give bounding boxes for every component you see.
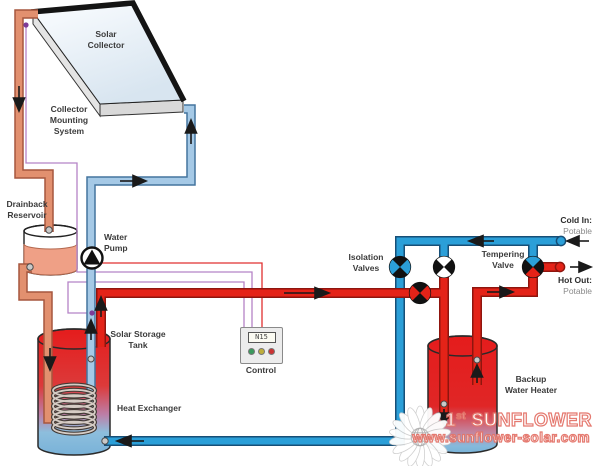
label-heat-exchanger: Heat Exchanger	[117, 403, 181, 414]
cold-in-title: Cold In:	[560, 215, 592, 226]
reservoir-outlet-fitting	[27, 264, 33, 270]
tank-return-fitting	[88, 356, 94, 362]
watermark-brand-word: SUNFLOWER	[472, 410, 593, 430]
isolation-valve-1-icon	[390, 257, 411, 278]
control-leds	[245, 348, 278, 355]
reservoir-inlet-fitting	[46, 227, 52, 233]
label-cold-in: Cold In: Potable	[560, 215, 592, 236]
supply-valve-icon	[410, 283, 431, 304]
watermark-brand-number: 1	[446, 410, 457, 430]
solar-heating-diagram: Solar Collector Collector Mounting Syste…	[0, 0, 600, 466]
tank-sensor-dot	[89, 310, 94, 315]
diagram-canvas	[0, 0, 600, 466]
control-led-green	[248, 348, 255, 355]
control-display: N15	[248, 332, 276, 343]
hot-out-title: Hot Out:	[558, 275, 592, 286]
label-drainback-reservoir: Drainback Reservoir	[6, 199, 47, 221]
watermark-url: www.sunflower-solar.com	[412, 430, 590, 445]
label-solar-storage-tank: Solar Storage Tank	[110, 329, 165, 351]
cold-in-pipe-cap	[556, 236, 565, 245]
water-pump-icon	[82, 248, 103, 269]
heater-feed-fitting	[441, 401, 447, 407]
label-solar-collector: Solar Collector	[88, 29, 125, 51]
arrow-cold-in-left	[567, 236, 589, 246]
collector-sensor-dot	[23, 22, 28, 27]
control-led-red	[268, 348, 275, 355]
control-unit: N15	[240, 327, 283, 364]
tank-cold-inlet-fitting	[102, 438, 108, 444]
isolation-valve-2-icon	[434, 257, 455, 278]
heater-out-fitting	[474, 357, 480, 363]
arrow-hot-out-right	[570, 262, 591, 272]
watermark-brand-ordinal: st	[456, 411, 466, 422]
label-isolation-valves: Isolation Valves	[349, 252, 384, 274]
label-water-pump: Water Pump	[104, 232, 128, 254]
cold-in-subtitle: Potable	[560, 226, 592, 237]
label-control: Control	[246, 365, 276, 376]
label-hot-out: Hot Out: Potable	[558, 275, 592, 296]
label-collector-mounting-system: Collector Mounting System	[50, 104, 88, 137]
label-tempering-valve: Tempering Valve	[482, 249, 525, 271]
hot-out-pipe-cap	[555, 262, 564, 271]
watermark-brand: 1st SUNFLOWER	[446, 410, 592, 431]
control-led-yellow	[258, 348, 265, 355]
hot-out-subtitle: Potable	[558, 286, 592, 297]
solar-collector	[31, 3, 184, 116]
label-backup-water-heater: Backup Water Heater	[505, 374, 557, 396]
tempering-valve-icon	[523, 257, 544, 278]
